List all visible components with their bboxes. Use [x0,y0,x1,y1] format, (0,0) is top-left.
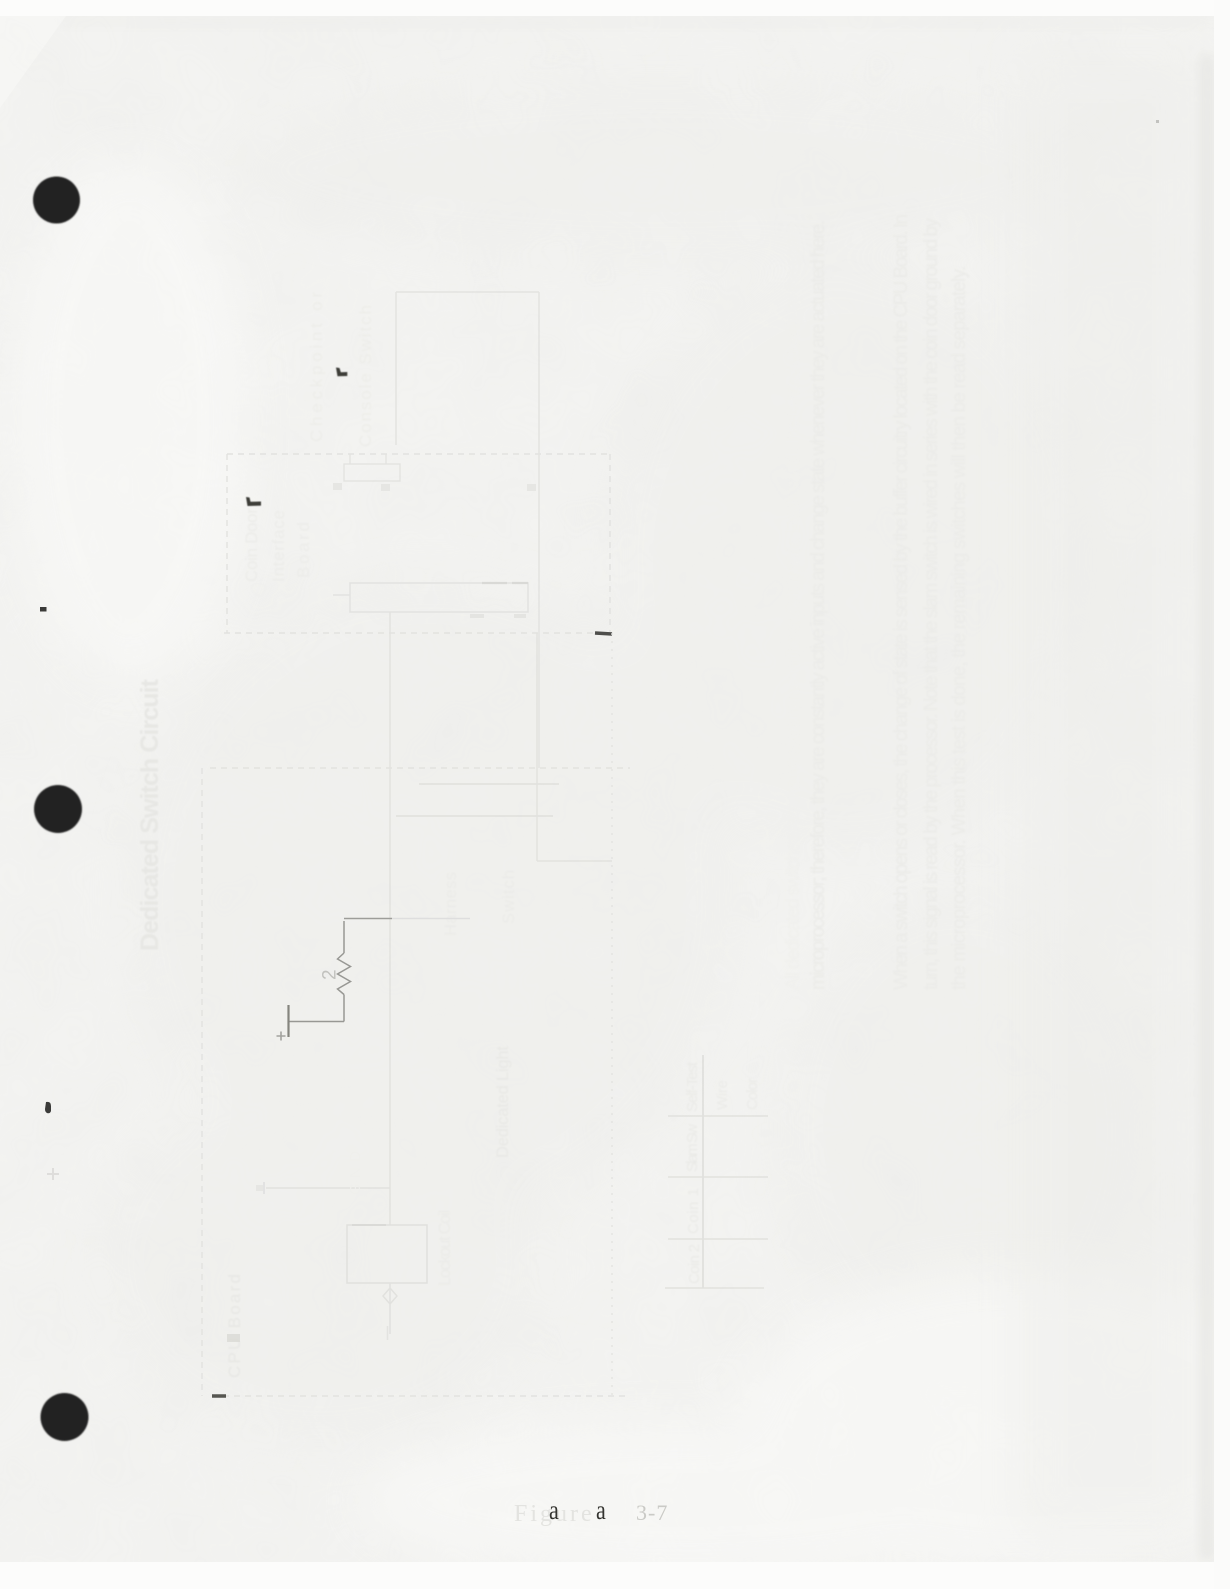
svg-text:Board: Board [294,522,313,578]
svg-text:When a switch opens or closes,: When a switch opens or closes, the chang… [891,214,912,990]
svg-text:microprocessor; therefore, the: microprocessor; therefore, they are cons… [808,220,829,990]
svg-text:Lockout Coil: Lockout Coil [436,1210,454,1286]
svg-text:Wire: Wire [714,1080,731,1110]
svg-text:turn, this signal is read by t: turn, this signal is read by the process… [921,217,942,990]
svg-text:Coin 1: Coin 1 [685,1188,702,1234]
svg-text:CPU Board: CPU Board [225,1274,244,1378]
svg-text:Harness: Harness [442,872,460,936]
svg-text:a: a [596,1496,606,1526]
svg-text:a: a [549,1496,559,1526]
svg-text:Color: Color [744,1078,761,1110]
svg-text:the microprocessor. When this: the microprocessor. When this test is do… [949,266,970,990]
svg-text:Dedicated Switch Circuit: Dedicated Switch Circuit [136,678,164,951]
svg-text:2: 2 [320,969,341,980]
svg-text:3-7: 3-7 [636,1500,668,1525]
svg-text:Dedicated Light: Dedicated Light [494,1046,512,1158]
svg-text:Interface: Interface [269,510,288,582]
svg-text:GND: GND [347,1151,364,1195]
svg-text:Self-Test: Self-Test [684,1061,701,1112]
svg-text:Slam Sw: Slam Sw [684,1124,701,1172]
svg-text:Coin 2: Coin 2 [686,1244,703,1284]
svg-text:All dedicated switches require: All dedicated switches require no strobi… [783,222,804,990]
svg-text:Coin Door: Coin Door [242,508,261,582]
svg-text:Switch: Switch [500,870,518,924]
